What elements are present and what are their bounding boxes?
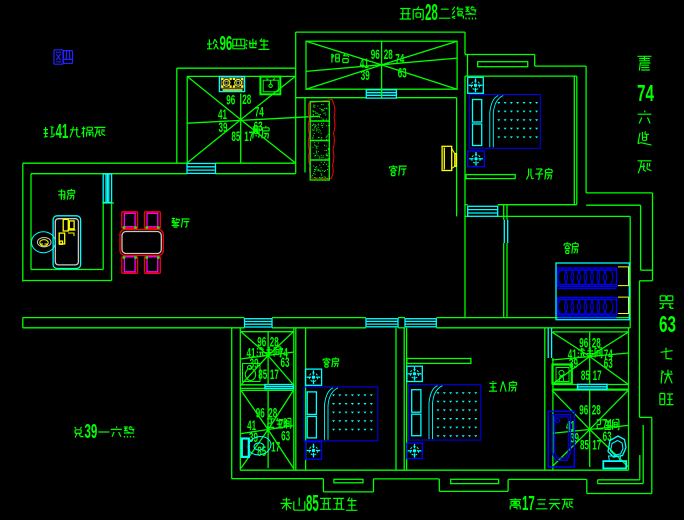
svg-text:85: 85: [580, 439, 589, 454]
svg-text:85: 85: [581, 369, 590, 384]
svg-text:96: 96: [371, 48, 380, 63]
svg-text:96: 96: [579, 403, 588, 418]
svg-text:41: 41: [56, 121, 69, 143]
svg-text:17: 17: [592, 439, 601, 454]
svg-text:17: 17: [593, 369, 602, 384]
svg-text:63: 63: [604, 357, 613, 372]
svg-text:28: 28: [592, 403, 601, 418]
svg-text:63: 63: [398, 67, 407, 82]
svg-text:17: 17: [270, 368, 279, 383]
svg-text:85: 85: [306, 491, 319, 516]
svg-text:63: 63: [281, 356, 290, 371]
svg-text:39: 39: [85, 421, 98, 443]
svg-text:74: 74: [395, 53, 405, 68]
svg-text:28: 28: [384, 48, 393, 63]
svg-text:28: 28: [242, 93, 251, 108]
svg-text:96: 96: [220, 33, 233, 55]
svg-text:96: 96: [579, 336, 588, 351]
svg-text:39: 39: [361, 69, 370, 84]
svg-text:28: 28: [425, 0, 438, 25]
svg-text:63: 63: [254, 120, 263, 135]
svg-text:85: 85: [257, 445, 266, 460]
svg-text:39: 39: [219, 121, 228, 136]
svg-text:74: 74: [255, 105, 265, 120]
svg-text:63: 63: [281, 430, 290, 445]
svg-text:17: 17: [522, 493, 535, 515]
svg-text:96: 96: [256, 407, 265, 422]
svg-text:17: 17: [271, 441, 280, 456]
svg-text:74: 74: [637, 81, 654, 107]
svg-text:96: 96: [226, 94, 235, 109]
svg-text:85: 85: [231, 130, 240, 145]
svg-text:63: 63: [659, 312, 676, 338]
svg-text:17: 17: [244, 130, 253, 145]
